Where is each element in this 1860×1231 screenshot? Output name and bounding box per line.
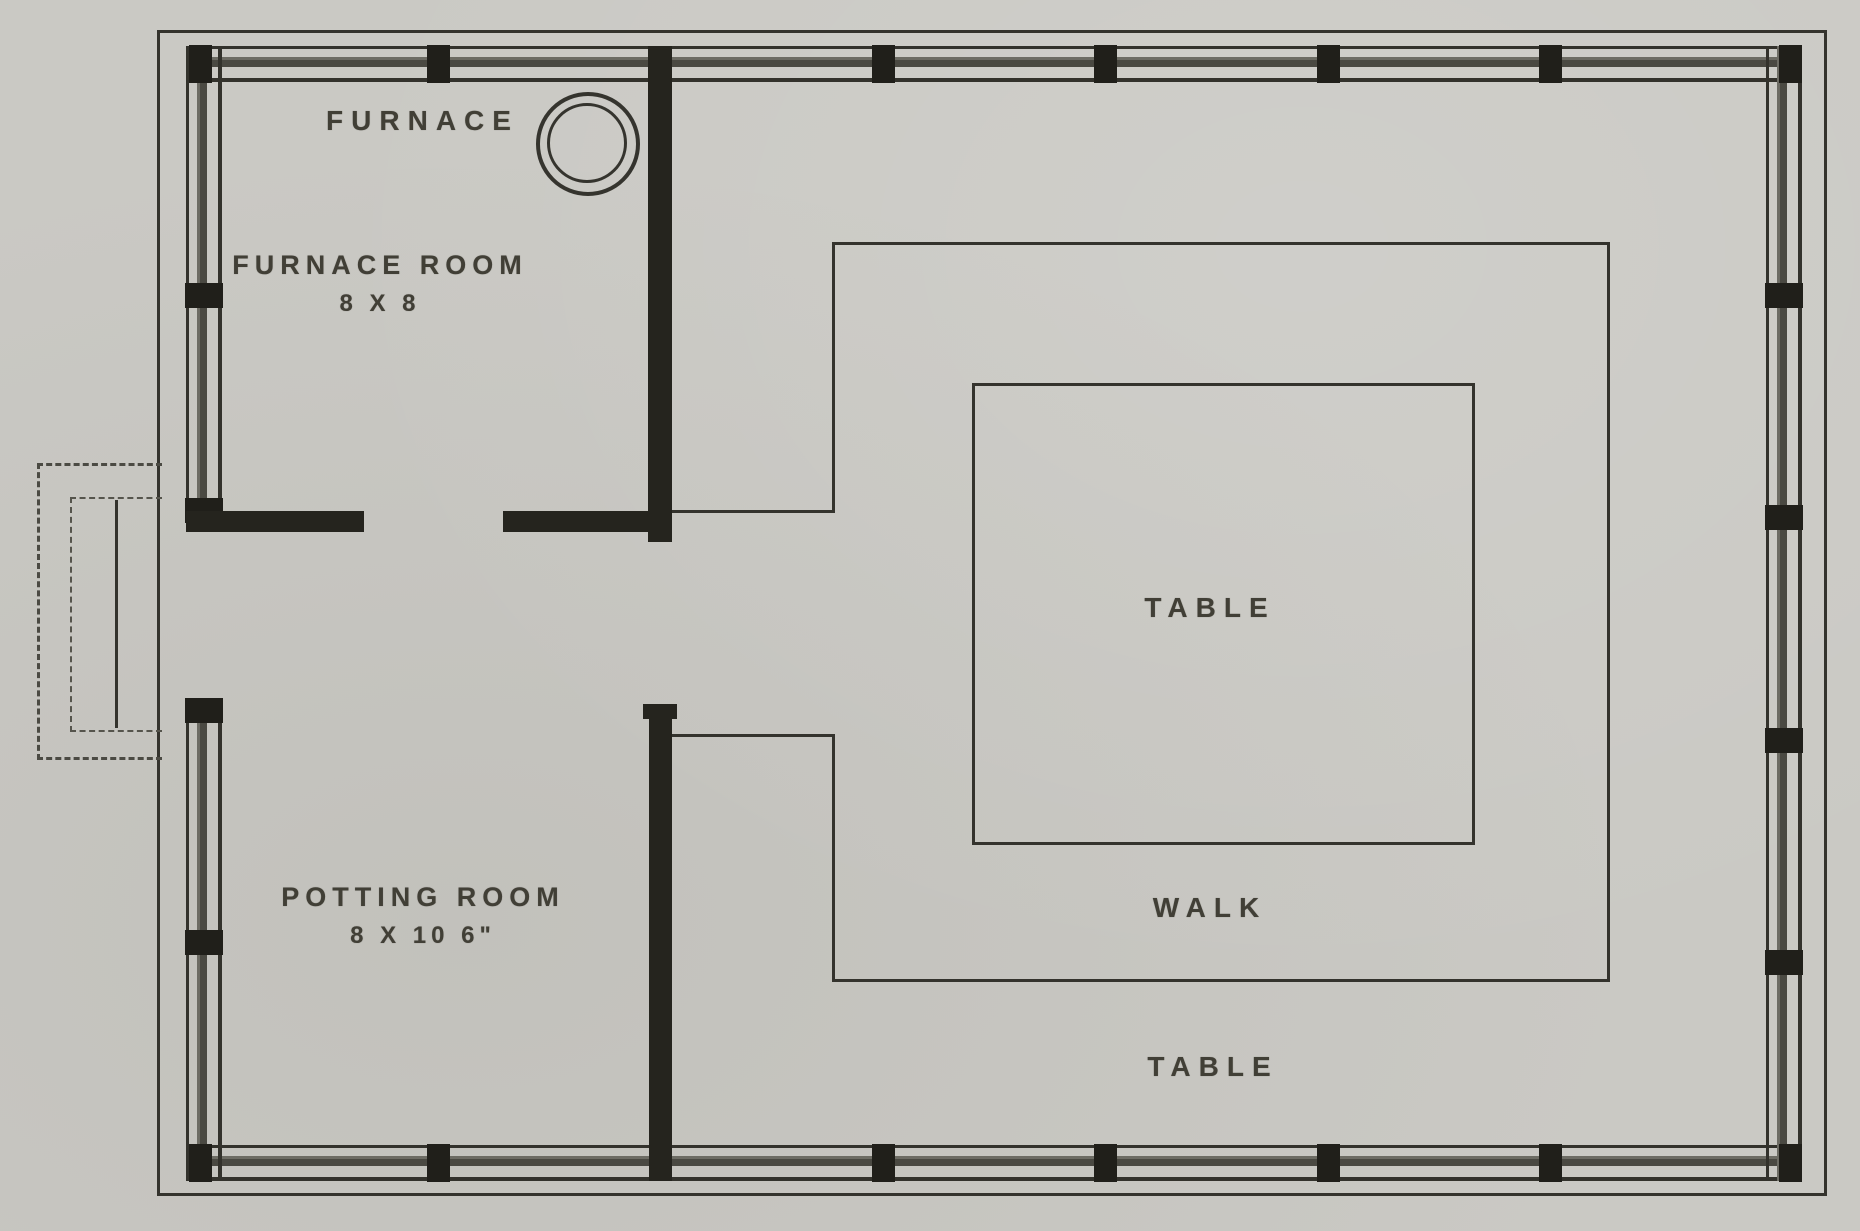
- furnace-circle-inner: [547, 103, 627, 183]
- wall-post: [1765, 505, 1803, 530]
- wall-post: [185, 930, 223, 955]
- table-label-south: TABLE: [1113, 1051, 1313, 1083]
- furnace-room-label: FURNACE ROOM: [230, 250, 530, 281]
- wall-post: [189, 1144, 212, 1182]
- wall-post: [427, 1144, 450, 1182]
- walk-outline-left-lower: [832, 734, 835, 982]
- furnace-room-size-label: 8 X 8: [230, 290, 530, 318]
- walk-connector-lower: [672, 734, 835, 737]
- wall-post: [1779, 1144, 1802, 1182]
- wall-post: [1765, 283, 1803, 308]
- furnace-label: FURNACE: [315, 105, 530, 137]
- wall-post: [1317, 45, 1340, 83]
- wall-post: [1094, 45, 1117, 83]
- wall-post: [872, 45, 895, 83]
- wall-end-cap: [185, 698, 223, 723]
- furnace-room-south-wall-right: [503, 511, 648, 532]
- wall-post: [185, 283, 223, 308]
- wall-post: [1317, 1144, 1340, 1182]
- floor-plan-page: FURNACE FURNACE ROOM 8 X 8 POTTING ROOM …: [0, 0, 1860, 1231]
- wall-post: [1779, 45, 1802, 83]
- walk-outline-right: [1607, 242, 1610, 982]
- potting-room-size-label: 8 X 10 6": [258, 922, 588, 950]
- furnace-room-south-wall-left: [186, 511, 364, 532]
- walk-outline-bottom: [832, 979, 1610, 982]
- walk-outline-left-upper: [832, 242, 835, 513]
- entry-vestibule-step-line: [115, 500, 118, 728]
- potting-room-label: POTTING ROOM: [258, 882, 588, 913]
- furnace-room-east-wall: [648, 46, 672, 542]
- wall-band-right: [1766, 46, 1802, 1181]
- walk-outline-top: [832, 242, 1610, 245]
- wall-post: [872, 1144, 895, 1182]
- wall-post: [427, 45, 450, 83]
- potting-room-east-wall: [649, 704, 672, 1181]
- wall-post: [1539, 45, 1562, 83]
- table-label-center: TABLE: [1110, 592, 1310, 624]
- wall-post: [1539, 1144, 1562, 1182]
- walk-connector-upper: [672, 510, 835, 513]
- walk-label: WALK: [1110, 892, 1310, 924]
- wall-post: [1765, 728, 1803, 753]
- wall-post: [1094, 1144, 1117, 1182]
- wall-post: [189, 45, 212, 83]
- wall-post: [1765, 950, 1803, 975]
